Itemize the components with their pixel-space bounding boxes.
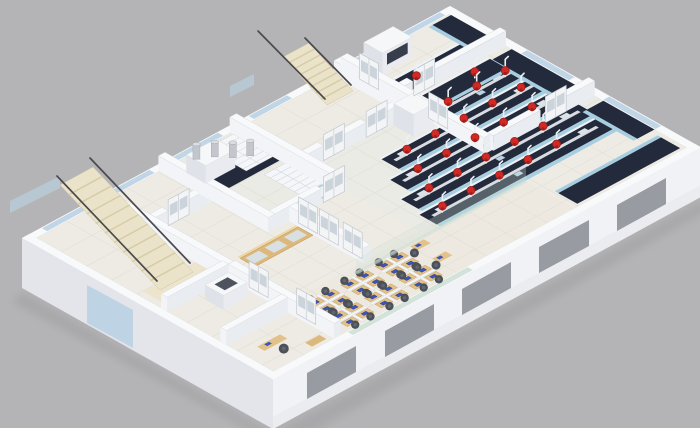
- fume-hood-chimney: [192, 142, 200, 159]
- fume-hood-chimney: [246, 139, 254, 156]
- office-chair: [432, 261, 441, 270]
- office-chair: [279, 344, 289, 354]
- fume-hood-chimney: [211, 140, 219, 157]
- fume-hood-chimney: [229, 141, 237, 158]
- floor-plan-stage: [0, 0, 700, 428]
- office-chair: [410, 248, 419, 257]
- isometric-lab-floor-plan: [0, 0, 700, 428]
